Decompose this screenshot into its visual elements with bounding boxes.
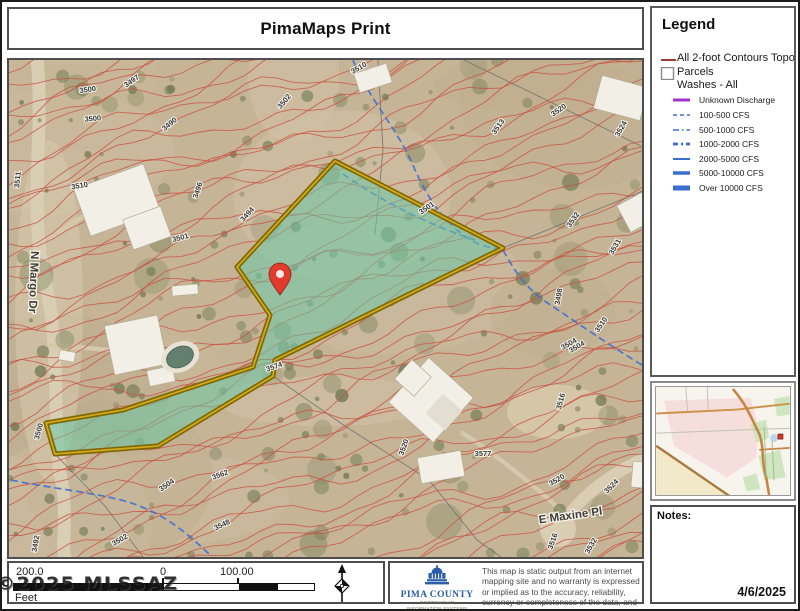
street-label: N Margo Dr bbox=[26, 251, 40, 314]
legend-wash-item: 2000-5000 CFS bbox=[652, 152, 794, 166]
legend-wash-label: 2000-5000 CFS bbox=[699, 154, 759, 164]
overview-map-frame bbox=[650, 381, 796, 501]
legend-wash-item: 500-1000 CFS bbox=[652, 123, 794, 137]
contour-label: 3511 bbox=[12, 171, 22, 188]
logo-sub1: GEOGRAPHIC bbox=[420, 600, 454, 605]
legend-wash-label: 1000-2000 CFS bbox=[699, 139, 759, 149]
wash-line-swatch bbox=[672, 153, 694, 165]
overview-map bbox=[655, 386, 791, 496]
watermark: ©2025 MLSSAZ bbox=[0, 574, 179, 594]
wash-line-swatch bbox=[672, 138, 694, 150]
wash-line-swatch bbox=[672, 109, 694, 121]
contour-label: 3577 bbox=[475, 449, 492, 458]
print-date: 4/6/2025 bbox=[737, 585, 786, 599]
wash-line-swatch bbox=[672, 124, 694, 136]
legend-item-label: Washes - All bbox=[677, 79, 738, 91]
scale-tick bbox=[237, 578, 239, 584]
legend-wash-item: 5000-10000 CFS bbox=[652, 166, 794, 180]
wash-line-swatch bbox=[672, 167, 694, 179]
overview-marker bbox=[778, 434, 783, 439]
legend-wash-label: Over 10000 CFS bbox=[699, 183, 763, 193]
legend-item-label: All 2-foot Contours Topography bbox=[677, 52, 794, 64]
legend-wash-label: 500-1000 CFS bbox=[699, 125, 754, 135]
disclaimer-panel: PIMA COUNTY GEOGRAPHIC INFORMATION SYSTE… bbox=[388, 561, 644, 604]
notes-panel: Notes: 4/6/2025 bbox=[650, 505, 796, 604]
notes-heading: Notes: bbox=[657, 510, 691, 522]
building bbox=[631, 461, 642, 489]
north-arrow-icon bbox=[329, 564, 355, 604]
map-canvas: 3500349735003490350234963494351035113501… bbox=[9, 60, 642, 557]
contour-label: 3500 bbox=[84, 113, 101, 123]
legend-wash-item: 1000-2000 CFS bbox=[652, 137, 794, 151]
legend-wash-item: 100-500 CFS bbox=[652, 108, 794, 122]
logo-title: PIMA COUNTY bbox=[396, 590, 478, 600]
title-bar: PimaMaps Print bbox=[7, 7, 644, 50]
scale-label-100: 100.00 bbox=[220, 566, 254, 578]
page-title: PimaMaps Print bbox=[260, 19, 390, 39]
building bbox=[104, 315, 167, 375]
legend-wash-label: 5000-10000 CFS bbox=[699, 168, 764, 178]
logo-sub2: INFORMATION SYSTEMS bbox=[407, 606, 468, 611]
disclaimer-text: This map is static output from an intern… bbox=[482, 566, 642, 611]
legend-item-label: Parcels bbox=[677, 66, 714, 78]
legend-wash-label: Unknown Discharge bbox=[699, 95, 775, 105]
wash-line-swatch bbox=[672, 182, 694, 194]
legend-item: Parcels bbox=[652, 66, 794, 80]
pima-county-logo: PIMA COUNTY GEOGRAPHIC INFORMATION SYSTE… bbox=[396, 565, 478, 611]
legend-panel: Legend All 2-foot Contours TopographyPar… bbox=[650, 6, 796, 377]
legend-wash-item: Over 10000 CFS bbox=[652, 181, 794, 195]
building bbox=[172, 284, 199, 296]
legend-item: All 2-foot Contours Topography bbox=[652, 52, 794, 66]
capitol-icon bbox=[420, 565, 454, 585]
legend-item: Washes - All bbox=[652, 79, 794, 93]
legend-items: All 2-foot Contours TopographyParcelsWas… bbox=[652, 8, 794, 375]
contour-line-swatch bbox=[659, 53, 679, 66]
print-page: PimaMaps Print 3500349735003490350234963… bbox=[0, 0, 800, 611]
wash-line-swatch bbox=[672, 94, 694, 106]
legend-wash-label: 100-500 CFS bbox=[699, 110, 750, 120]
map-frame: 3500349735003490350234963494351035113501… bbox=[7, 58, 644, 559]
legend-wash-item: Unknown Discharge bbox=[652, 93, 794, 107]
